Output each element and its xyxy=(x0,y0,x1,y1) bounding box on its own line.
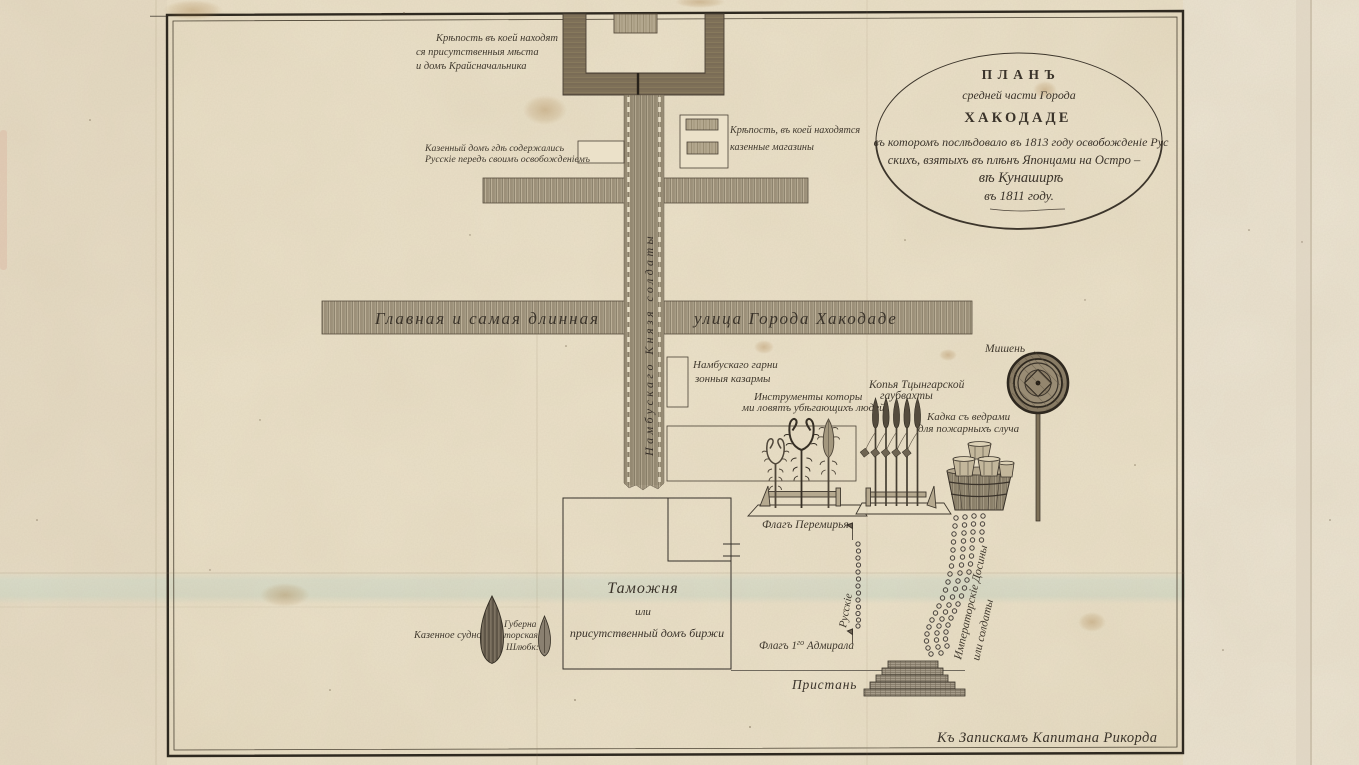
svg-text:Флагъ Перемирья: Флагъ Перемирья xyxy=(762,519,849,531)
svg-text:Главная и самая длинная: Главная и самая длинная xyxy=(374,309,600,328)
svg-text:средней части Города: средней части Города xyxy=(962,88,1076,102)
svg-text:ми ловятъ убѣгающихъ людей: ми ловятъ убѣгающихъ людей xyxy=(741,402,885,414)
svg-text:Крѣпость въ коей находят: Крѣпость въ коей находят xyxy=(435,33,558,44)
svg-text:или: или xyxy=(635,606,651,618)
svg-text:Русскіе передъ своимъ освобожд: Русскіе передъ своимъ освобожденіемъ xyxy=(424,154,590,165)
svg-text:ПЛАНЪ: ПЛАНЪ xyxy=(982,67,1061,82)
svg-text:вѣ Кунаширѣ: вѣ Кунаширѣ xyxy=(979,170,1064,186)
svg-text:для пожарныхъ случа: для пожарныхъ случа xyxy=(918,423,1020,435)
svg-text:Кадка съ ведрами: Кадка съ ведрами xyxy=(926,411,1011,423)
svg-text:Намбускаго гарни: Намбускаго гарни xyxy=(692,359,778,371)
svg-text:въ 1811 году.: въ 1811 году. xyxy=(984,188,1054,203)
svg-text:Губерна: Губерна xyxy=(503,619,537,630)
svg-text:Таможня: Таможня xyxy=(607,580,678,597)
svg-text:ХАКОДАДЕ: ХАКОДАДЕ xyxy=(964,110,1071,126)
svg-text:присутственный домъ биржи: присутственный домъ биржи xyxy=(570,626,724,640)
svg-text:ся присутственныя мѣста: ся присутственныя мѣста xyxy=(416,47,539,58)
svg-text:торская: торская xyxy=(504,631,538,641)
svg-text:и домъ Крайсначальника: и домъ Крайсначальника xyxy=(416,61,527,72)
svg-text:казенные магазины: казенные магазины xyxy=(730,142,814,153)
svg-text:Шлюбк:: Шлюбк: xyxy=(505,642,539,653)
svg-text:Намбускаго Князя солдаты: Намбускаго Князя солдаты xyxy=(642,233,656,457)
svg-text:зонныя казармы: зонныя казармы xyxy=(694,373,771,385)
svg-text:въ которомъ послѣдовало въ 181: въ которомъ послѣдовало въ 1813 году осв… xyxy=(874,135,1169,149)
svg-text:скихъ, взятыхъ въ плѣнъ Японца: скихъ, взятыхъ въ плѣнъ Японцами на Остр… xyxy=(888,153,1141,167)
svg-text:Къ Запискамъ Капитана Рикорда: Къ Запискамъ Капитана Рикорда xyxy=(936,730,1157,746)
svg-text:Мишень: Мишень xyxy=(984,343,1025,355)
svg-text:Казенный домъ гдѣ содержались: Казенный домъ гдѣ содержались xyxy=(424,143,565,154)
svg-text:Крѣпость, въ коей находятся: Крѣпость, въ коей находятся xyxy=(729,125,860,136)
svg-text:Казенное судно: Казенное судно xyxy=(413,630,482,641)
svg-text:Пристань: Пристань xyxy=(791,677,857,692)
svg-text:Флагъ 1го Адмирала: Флагъ 1го Адмирала xyxy=(759,638,854,652)
